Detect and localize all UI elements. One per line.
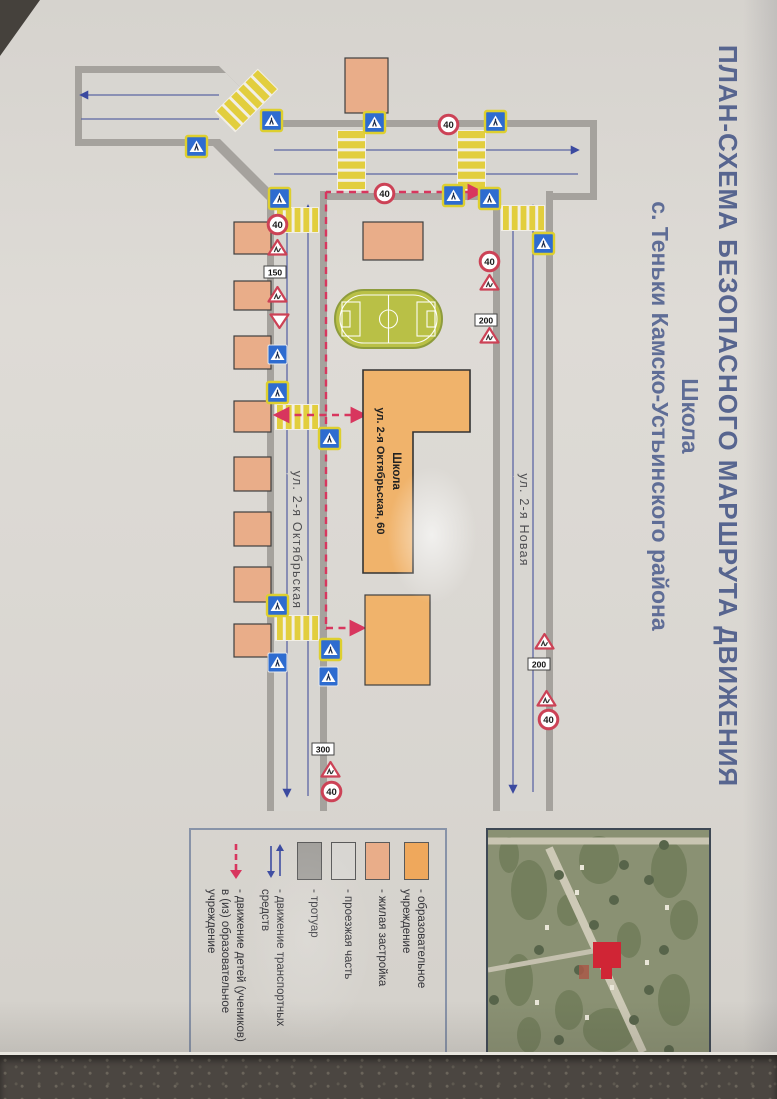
photo-of-route-plan: ул. 2-я Октябрьскаяул. 2-я НоваяШколаул.… xyxy=(0,0,777,1099)
legend-box: - образовательное учреждение- жилая заст… xyxy=(189,828,447,1062)
satellite-photo xyxy=(486,828,711,1061)
legend-items: - образовательное учреждение- жилая заст… xyxy=(203,830,429,1060)
legend-item-label: - жилая застройка xyxy=(374,889,390,986)
residential-building xyxy=(234,336,271,369)
children-route-arrow-icon xyxy=(223,842,248,880)
legend-item: - тротуар xyxy=(297,842,322,1050)
legend-item: - движение детей (учеников) в (из) образ… xyxy=(203,842,248,1050)
residential-building xyxy=(345,58,388,113)
legend-swatch xyxy=(404,842,429,880)
legend-item-label: - движение транспортных средств xyxy=(257,889,287,1050)
svg-text:40: 40 xyxy=(543,715,554,726)
residential-building xyxy=(234,567,271,602)
legend-item: - проезжая часть xyxy=(331,842,356,1050)
sign-pedestrian-crossing xyxy=(267,595,288,616)
svg-text:40: 40 xyxy=(484,257,495,268)
sign-pedestrian-crossing xyxy=(319,428,340,449)
sign-speed-limit-40: 40 xyxy=(539,710,558,729)
sign-speed-limit-40: 40 xyxy=(268,215,287,234)
document-title-block: ПЛАН-СХЕМА БЕЗОПАСНОГО МАРШРУТА ДВИЖЕНИЯ… xyxy=(646,0,743,832)
residential-building xyxy=(234,281,271,310)
residential-building xyxy=(234,624,271,657)
school-label-line1: Школа xyxy=(390,452,402,490)
sign-distance-plate: 300 xyxy=(312,743,334,755)
svg-text:150: 150 xyxy=(268,268,282,278)
satellite-image xyxy=(488,830,709,1059)
sign-speed-limit-40: 40 xyxy=(322,782,341,801)
school-label-line2: ул. 2-я Октябрьская, 60 xyxy=(374,408,386,535)
legend-swatch xyxy=(365,842,390,880)
sign-pedestrian-crossing xyxy=(364,112,385,133)
residential-building xyxy=(363,222,423,260)
svg-text:40: 40 xyxy=(379,189,390,200)
zebra-crossing xyxy=(275,615,319,641)
sign-pedestrian-crossing xyxy=(261,110,282,131)
sign-pedestrian-crossing xyxy=(485,111,506,132)
legend-item-label: - проезжая часть xyxy=(340,889,356,979)
residential-building xyxy=(234,401,271,432)
svg-text:40: 40 xyxy=(272,220,283,231)
road-main xyxy=(82,73,590,193)
legend-item-label: - тротуар xyxy=(306,889,322,938)
residential-building xyxy=(234,512,271,546)
zebra-crossing xyxy=(337,130,366,191)
education-building xyxy=(365,595,430,685)
sign-speed-limit-40: 40 xyxy=(375,184,394,203)
residential-building xyxy=(234,222,271,254)
legend-item: - жилая застройка xyxy=(365,842,390,1050)
sign-pedestrian-crossing xyxy=(443,185,464,206)
residential-building xyxy=(234,457,271,491)
svg-text:40: 40 xyxy=(443,120,454,131)
page-subtitle-school: Школа xyxy=(676,0,703,832)
sign-speed-limit-40: 40 xyxy=(480,252,499,271)
sign-pedestrian-crossing xyxy=(320,639,341,660)
sign-distance-plate: 150 xyxy=(264,266,286,278)
page-subtitle-location: с. Теньки Камско-Устьинского района xyxy=(646,0,673,832)
svg-text:40: 40 xyxy=(326,787,337,798)
legend-item: - образовательное учреждение xyxy=(399,842,429,1050)
sign-distance-plate: 200 xyxy=(528,658,550,670)
sign-pedestrian-crossing xyxy=(533,233,554,254)
legend-swatch xyxy=(331,842,356,880)
legend-swatch xyxy=(297,842,322,880)
route-plan-document: ул. 2-я Октябрьскаяул. 2-я НоваяШколаул.… xyxy=(0,0,777,1056)
svg-text:200: 200 xyxy=(532,660,546,670)
sign-pedestrian-crossing xyxy=(267,382,288,403)
sign-speed-limit-40: 40 xyxy=(439,115,458,134)
sign-pedestrian-crossing xyxy=(269,188,290,209)
legend-item-label: - движение детей (учеников) в (из) образ… xyxy=(203,889,248,1050)
traffic-arrows-icon xyxy=(263,842,288,880)
sign-distance-plate: 200 xyxy=(475,314,497,326)
zebra-crossing xyxy=(457,130,486,191)
zebra-crossing xyxy=(501,205,545,231)
svg-text:200: 200 xyxy=(479,316,493,326)
sign-pedestrian-crossing-small xyxy=(268,345,287,364)
sign-pedestrian-crossing-small xyxy=(268,653,287,672)
page-title: ПЛАН-СХЕМА БЕЗОПАСНОГО МАРШРУТА ДВИЖЕНИЯ xyxy=(712,0,743,832)
sign-pedestrian-crossing-small xyxy=(319,667,338,686)
street-label-oktyabrskaya: ул. 2-я Октябрьская xyxy=(290,471,304,610)
sign-pedestrian-crossing xyxy=(479,188,500,209)
street-label-novaya: ул. 2-я Новая xyxy=(517,473,531,566)
sign-pedestrian-crossing xyxy=(186,136,207,157)
zebra-crossing xyxy=(275,404,319,430)
legend-item-label: - образовательное учреждение xyxy=(399,889,429,1050)
svg-text:300: 300 xyxy=(316,745,330,755)
floor-background xyxy=(0,1052,777,1099)
legend-item: - движение транспортных средств xyxy=(257,842,287,1050)
sports-field xyxy=(335,290,442,348)
